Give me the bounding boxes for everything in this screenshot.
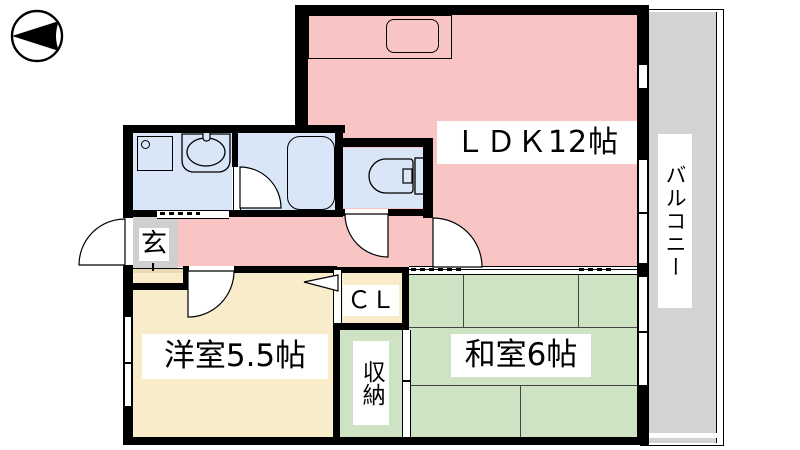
- window-western: [123, 317, 133, 406]
- storage-sliding-door: [402, 330, 411, 437]
- wall-right: [637, 88, 649, 160]
- entrance-door: [74, 214, 132, 270]
- tatami-line: [578, 273, 579, 327]
- western-room-door: [185, 269, 237, 321]
- wall-closet-top: [337, 267, 409, 273]
- wall-toilet-right: [423, 138, 433, 218]
- wall-closet-right: [402, 273, 409, 323]
- wall-bottom: [123, 437, 649, 445]
- wall-right: [637, 5, 649, 65]
- closet-door-swing-icon: [300, 271, 340, 295]
- step-mark: [152, 263, 154, 271]
- wall-step-bottom: [123, 283, 188, 290]
- label-closet: ＣＬ: [343, 285, 399, 316]
- wall-right: [637, 385, 649, 445]
- label-ldk: ＬＤＫ12帖: [437, 121, 637, 164]
- wall-left: [123, 265, 133, 317]
- bathtub-icon: [287, 136, 335, 210]
- wall-washroom-bottom: [123, 210, 343, 217]
- kitchen-sink: [386, 19, 439, 53]
- label-western-room: 洋室5.5帖: [142, 334, 328, 379]
- balcony-floor-edge: [642, 438, 717, 443]
- wall-closet-bottom: [333, 323, 409, 330]
- wall-ldk-left: [295, 5, 308, 133]
- label-balcony: バルコニー: [658, 134, 692, 308]
- window-ldk-balcony: [637, 160, 649, 263]
- wall-top: [295, 5, 649, 15]
- wall-storage-left: [333, 330, 340, 437]
- wall-wash-bath: [232, 133, 238, 167]
- label-entrance: 玄: [139, 228, 169, 261]
- wash-basin-icon: [179, 128, 233, 186]
- tatami-line: [463, 273, 464, 327]
- tatami-line: [409, 327, 637, 328]
- wall-left: [123, 125, 133, 218]
- tatami-line: [520, 386, 521, 437]
- wall-wet-top: [123, 125, 345, 133]
- toilet-door: [341, 212, 391, 262]
- floor-plan: ＬＤＫ12帖 バルコニー 玄 ＣＬ 収納 洋室5.5帖 和室6帖: [0, 0, 800, 450]
- wall-toilet-top: [335, 138, 433, 147]
- north-arrow-icon: [9, 7, 65, 63]
- ldk-door: [431, 216, 484, 269]
- label-japanese-room: 和室6帖: [451, 334, 591, 377]
- window-ldk-small: [637, 65, 649, 88]
- window-japanese-balcony: [637, 277, 649, 385]
- wall-right: [637, 263, 649, 277]
- bathroom-door: [236, 165, 286, 213]
- label-storage: 収納: [353, 341, 389, 425]
- tatami-line: [409, 385, 637, 386]
- washing-machine-dial: [141, 140, 150, 149]
- washroom-sliding-door: [157, 210, 229, 219]
